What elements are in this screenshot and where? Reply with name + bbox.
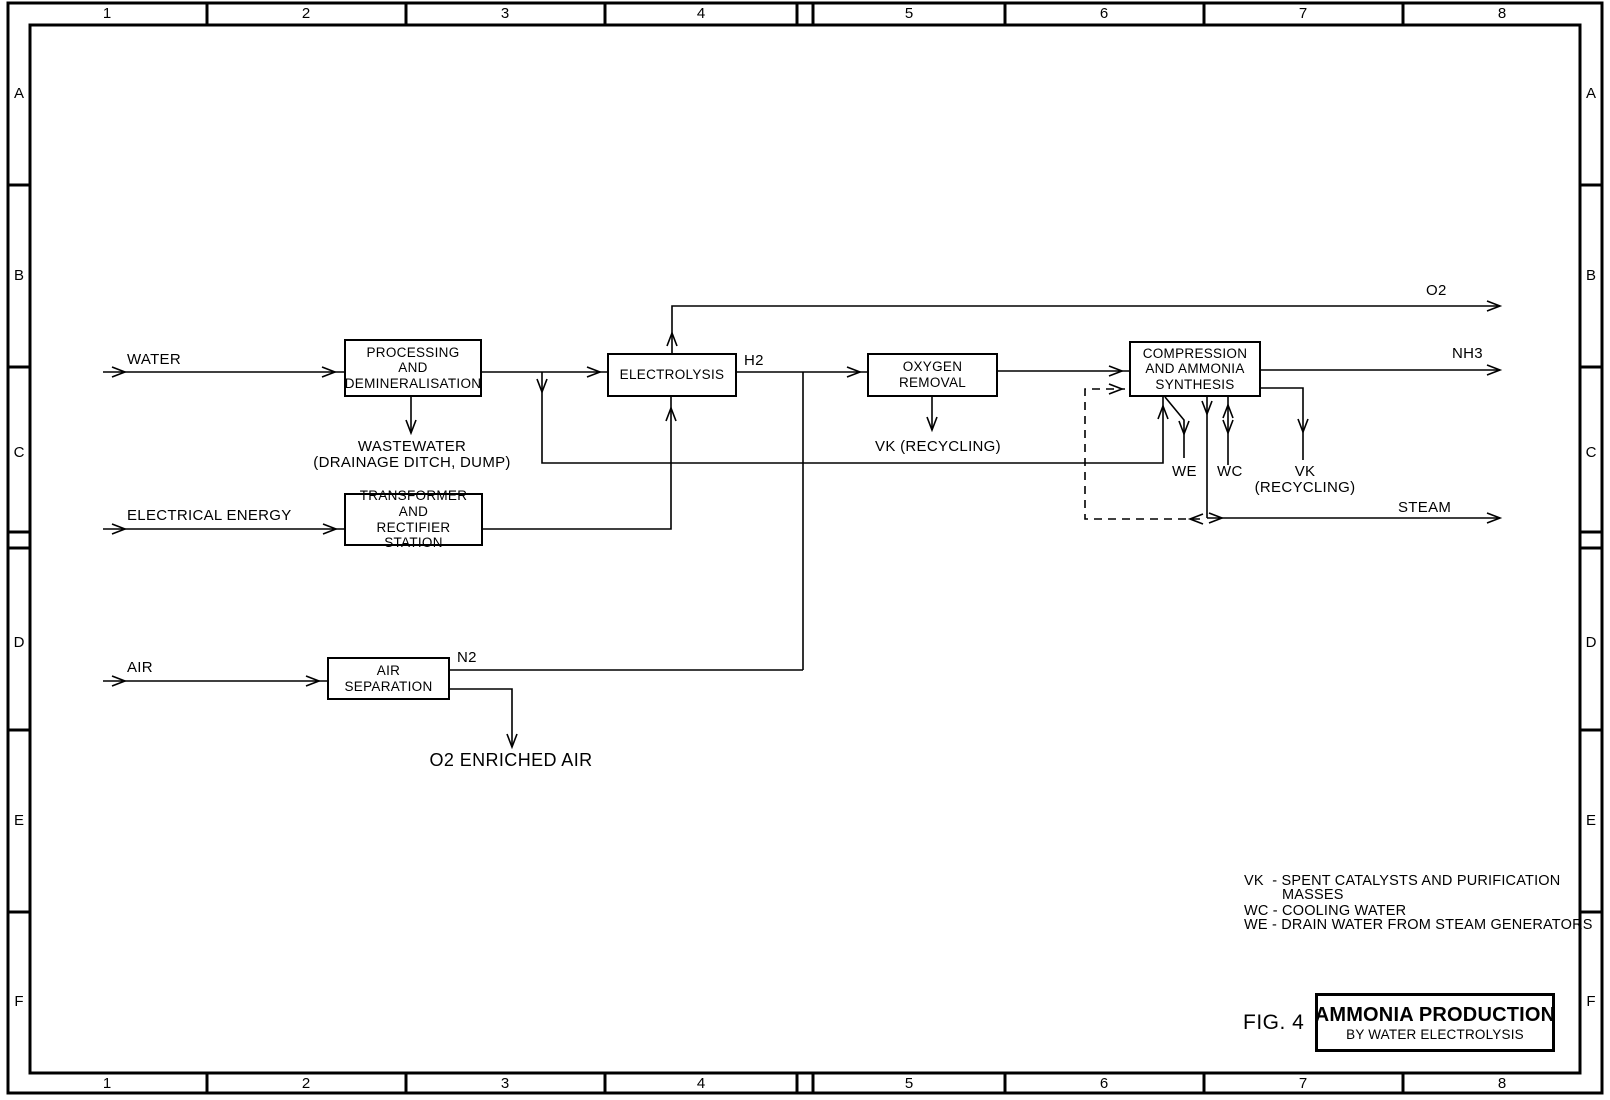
electrolysis-box: ELECTROLYSIS: [607, 353, 737, 397]
grid-number-top-3: 3: [501, 6, 509, 21]
grid-number-top-1: 1: [103, 6, 111, 21]
arrowheads: [112, 301, 1500, 747]
box-label: AND: [399, 504, 428, 520]
grid-number-bottom-7: 7: [1299, 1076, 1307, 1091]
box-label: DEMINERALISATION: [345, 376, 482, 392]
grid-number-bottom-1: 1: [103, 1076, 111, 1091]
grid-number-top-4: 4: [697, 6, 705, 21]
bottom-grid-ticks: [207, 1073, 1403, 1093]
vk-recycling-right-label: VK (RECYCLING): [1255, 464, 1356, 496]
electrical-energy-label: ELECTRICAL ENERGY: [127, 508, 292, 524]
left-grid-ticks: [8, 185, 30, 912]
legend-we-line: WE - DRAIN WATER FROM STEAM GENERATORS: [1244, 917, 1593, 933]
grid-letter-right-f: F: [1586, 994, 1595, 1009]
right-grid-ticks: [1580, 185, 1602, 912]
vk-recycling-mid-label: VK (RECYCLING): [875, 439, 1001, 455]
wastewater-line2: (DRAINAGE DITCH, DUMP): [313, 455, 510, 471]
drawing-subtitle: BY WATER ELECTROLYSIS: [1346, 1027, 1524, 1042]
grid-number-top-2: 2: [302, 6, 310, 21]
n2-label: N2: [457, 650, 477, 666]
air-label: AIR: [127, 660, 153, 676]
nh3-label: NH3: [1452, 346, 1483, 362]
box-label: TRANSFORMER: [360, 488, 468, 504]
wastewater-label: WASTEWATER (DRAINAGE DITCH, DUMP): [313, 439, 510, 471]
air-separation-box: AIR SEPARATION: [327, 657, 450, 700]
diagram-linework: [0, 0, 1610, 1100]
steam-recycle-dashed-line: [1085, 389, 1200, 519]
grid-letter-left-b: B: [14, 268, 24, 283]
grid-letter-right-c: C: [1586, 445, 1597, 460]
o2-label: O2: [1426, 283, 1447, 299]
vk-line: VK: [1255, 464, 1356, 480]
dashed-path: [1085, 389, 1200, 519]
wc-label: WC: [1217, 464, 1243, 480]
box-label: AND: [398, 360, 427, 376]
o2-output-line: [672, 306, 1500, 353]
grid-letter-left-d: D: [14, 635, 25, 650]
wastewater-line1: WASTEWATER: [313, 439, 510, 455]
oxygen-removal-box: OXYGEN REMOVAL: [867, 353, 998, 397]
figure-number: FIG. 4: [1243, 1011, 1304, 1035]
we-label: WE: [1172, 464, 1197, 480]
flow-lines: [103, 306, 1500, 747]
grid-number-bottom-6: 6: [1100, 1076, 1108, 1091]
top-grid-ticks: [207, 3, 1403, 25]
box-label: ELECTROLYSIS: [620, 367, 725, 383]
grid-number-bottom-3: 3: [501, 1076, 509, 1091]
grid-number-top-8: 8: [1498, 6, 1506, 21]
grid-number-bottom-8: 8: [1498, 1076, 1506, 1091]
box-label: COMPRESSION: [1143, 346, 1248, 362]
grid-number-top-7: 7: [1299, 6, 1307, 21]
box-label: RECTIFIER STATION: [346, 520, 481, 551]
box-label: SEPARATION: [344, 679, 432, 695]
grid-letter-left-e: E: [14, 813, 24, 828]
grid-number-top-5: 5: [905, 6, 913, 21]
grid-letter-left-f: F: [14, 994, 23, 1009]
grid-letter-right-e: E: [1586, 813, 1596, 828]
vk-recycling-right-line: [1261, 388, 1303, 460]
box-label: REMOVAL: [899, 375, 966, 391]
grid-number-top-6: 6: [1100, 6, 1108, 21]
legend-vk-cont-line: MASSES: [1282, 887, 1344, 903]
transformer-rectifier-box: TRANSFORMER AND RECTIFIER STATION: [344, 493, 483, 546]
grid-number-bottom-5: 5: [905, 1076, 913, 1091]
grid-number-bottom-2: 2: [302, 1076, 310, 1091]
title-block: AMMONIA PRODUCTION BY WATER ELECTROLYSIS: [1315, 993, 1555, 1052]
o2-enriched-air-label: O2 ENRICHED AIR: [429, 750, 592, 771]
drawing-title: AMMONIA PRODUCTION: [1315, 1004, 1556, 1027]
grid-letter-left-c: C: [14, 445, 25, 460]
steam-label: STEAM: [1398, 500, 1451, 516]
compression-ammonia-synthesis-box: COMPRESSION AND AMMONIA SYNTHESIS: [1129, 341, 1261, 397]
grid-letter-left-a: A: [14, 86, 24, 101]
water-label: WATER: [127, 352, 181, 368]
box-label: AND AMMONIA: [1145, 361, 1244, 377]
grid-letter-right-d: D: [1586, 635, 1597, 650]
vk-recycling-paren-line: (RECYCLING): [1255, 480, 1356, 496]
box-label: OXYGEN: [903, 359, 963, 375]
box-label: SYNTHESIS: [1155, 377, 1234, 393]
grid-number-bottom-4: 4: [697, 1076, 705, 1091]
grid-letter-right-b: B: [1586, 268, 1596, 283]
box-label: AIR: [377, 663, 400, 679]
h2-label: H2: [744, 353, 764, 369]
box-label: PROCESSING: [366, 345, 459, 361]
grid-letter-right-a: A: [1586, 86, 1596, 101]
processing-demineralisation-box: PROCESSING AND DEMINERALISATION: [344, 339, 482, 397]
drawing-sheet: 1 2 3 4 5 6 7 8 1 2 3 4 5 6 7 8 A B C D …: [0, 0, 1610, 1100]
o2-enriched-line: [450, 689, 512, 747]
